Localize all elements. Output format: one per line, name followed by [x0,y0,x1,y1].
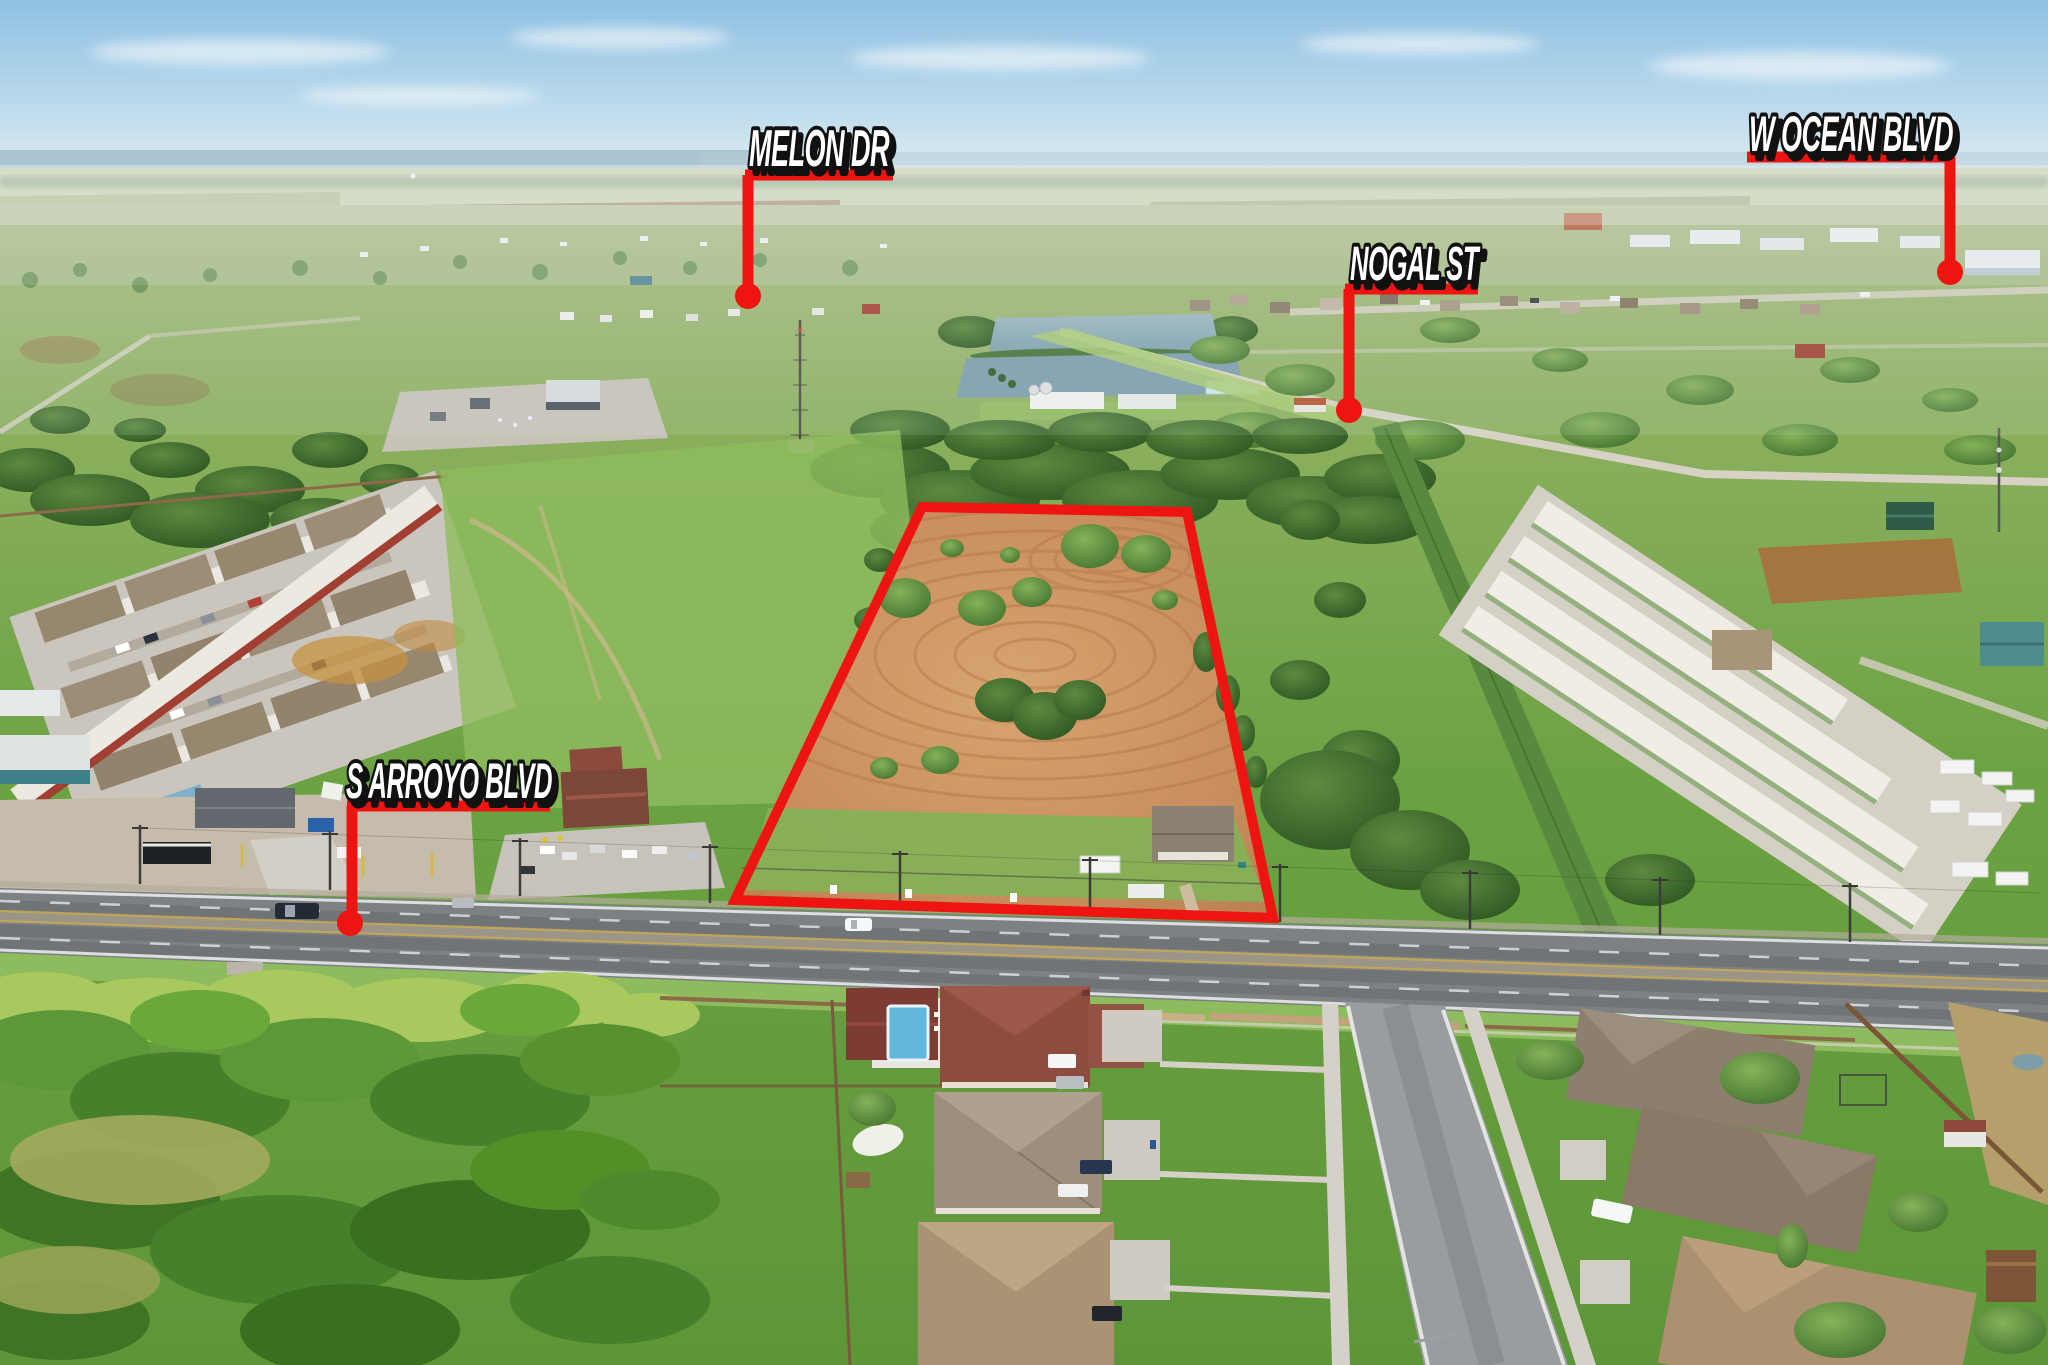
leader-dot [735,283,761,309]
haze-overlay-2 [0,165,2048,285]
aerial-listing-photo: MELON DR MELON DR W OCEAN BLVD W OCEAN B… [0,0,2048,1365]
playset [846,1172,870,1188]
street-label-text: S ARROYO BLVD [346,753,552,809]
white-van [1128,884,1164,898]
dumpsters [308,818,334,832]
haze-overlay-3 [0,285,2048,435]
dry-grass-patch [292,636,408,684]
tan-roof-house [1712,630,1772,670]
blue-car [1080,1160,1112,1174]
barn-shed [1986,1250,2036,1302]
leader-dot [1336,397,1362,423]
lot-house [1152,806,1234,862]
leader-dot [1937,259,1963,285]
service-truck [1080,856,1120,873]
white-suv [845,918,872,931]
house-c [918,1222,1114,1365]
dark-pickup [275,903,319,919]
street-label-text: NOGAL ST [1350,238,1481,291]
scene-canvas: MELON DR MELON DR W OCEAN BLVD W OCEAN B… [0,0,2048,1365]
dry-meadow [10,1115,270,1205]
street-label-text: W OCEAN BLVD [1749,106,1953,162]
leader-dot [337,910,363,936]
swimming-pool [888,1006,928,1060]
street-label-text: MELON DR [749,120,890,178]
